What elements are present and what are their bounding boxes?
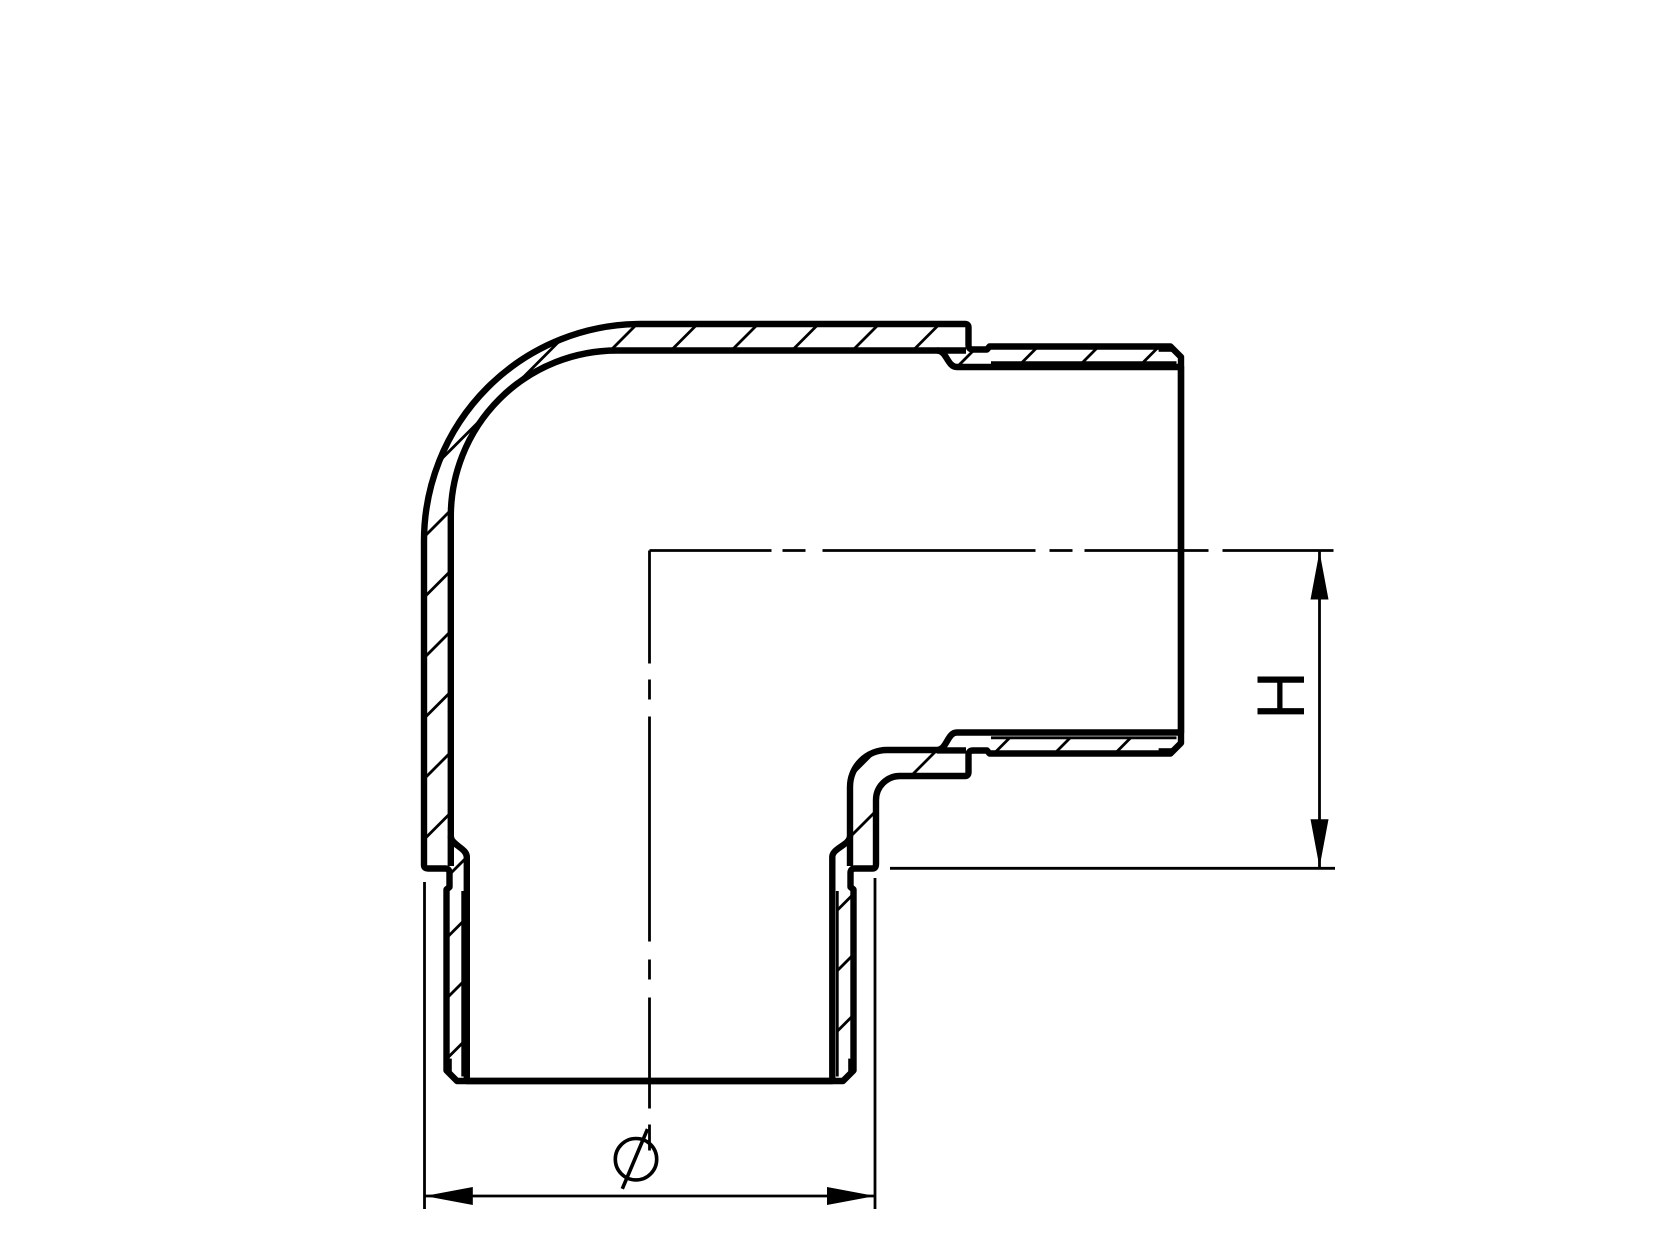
svg-text:H: H (1243, 671, 1319, 720)
